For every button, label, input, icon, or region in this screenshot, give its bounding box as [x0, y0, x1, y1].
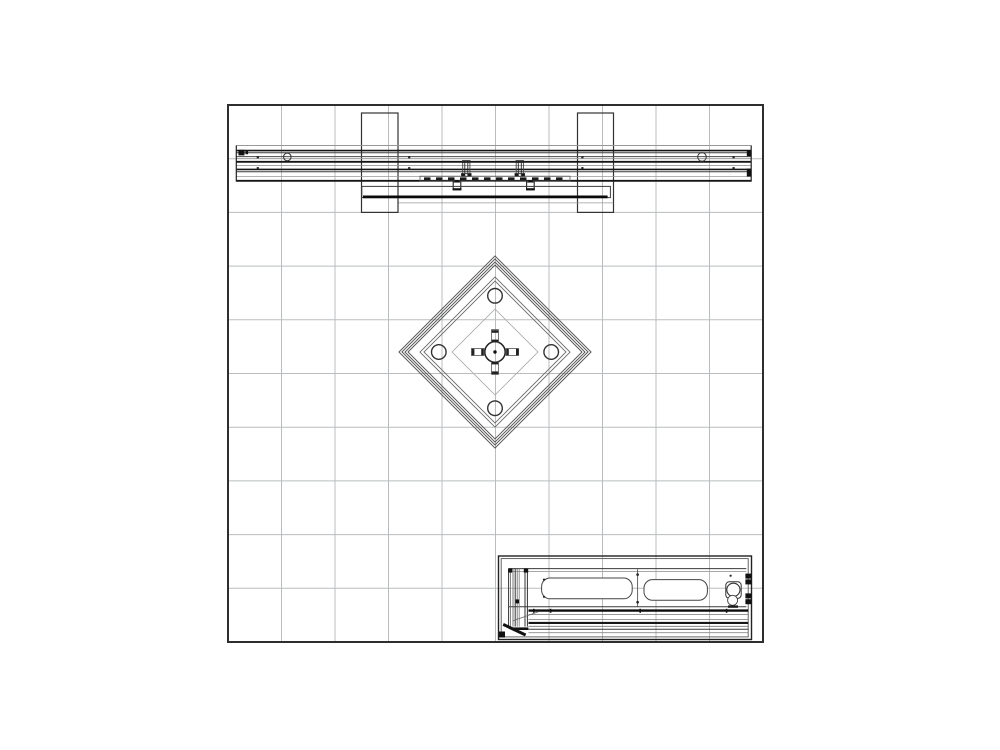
counter-slot-left	[542, 578, 633, 599]
counter-slot-right	[644, 580, 707, 601]
plan-drawing-svg	[0, 0, 1000, 750]
drawing-canvas	[0, 0, 1000, 750]
